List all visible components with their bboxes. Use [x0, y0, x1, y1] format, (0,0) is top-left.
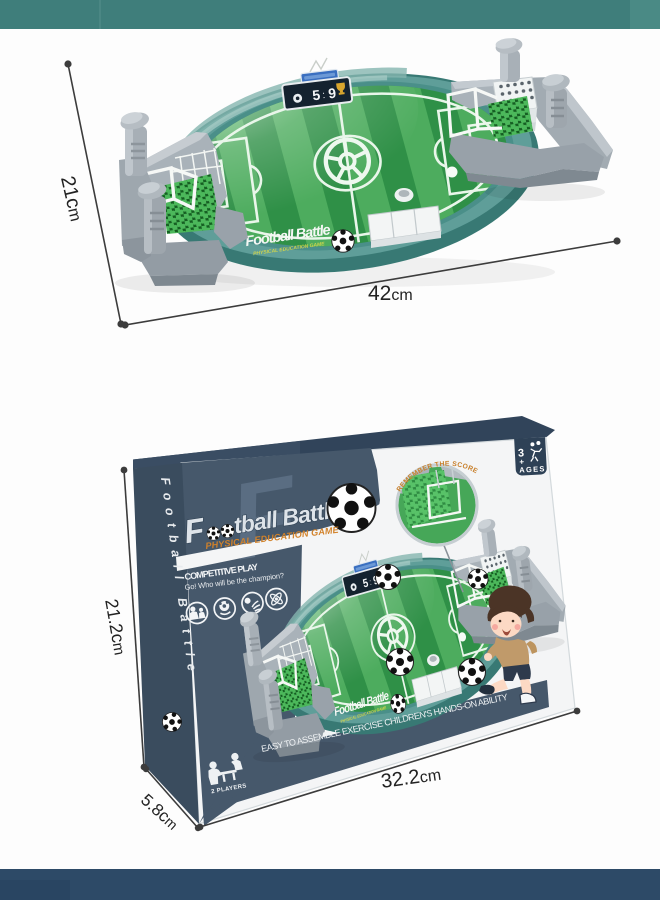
svg-text:AGES: AGES: [519, 464, 546, 474]
